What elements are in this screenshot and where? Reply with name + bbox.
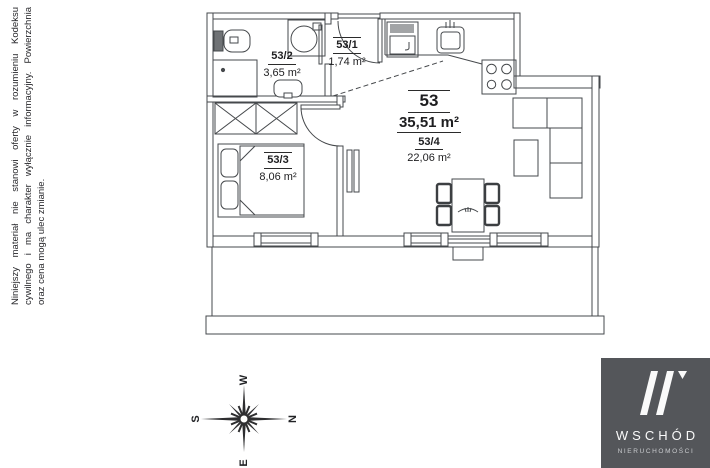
room-area: 1,74 m² bbox=[316, 56, 378, 69]
window-radiator-icon bbox=[254, 233, 318, 246]
kitchen-fixtures bbox=[385, 19, 516, 94]
disclaimer-line: cywilnego i ma charakter wyłącznie infor… bbox=[22, 7, 35, 305]
compass-south-label: S bbox=[190, 415, 202, 422]
unit-area: 35,51 m² bbox=[397, 114, 461, 133]
logo-w-icon bbox=[624, 369, 688, 415]
room-number: 53/1 bbox=[333, 37, 360, 54]
bedroom-door-swing bbox=[301, 107, 340, 146]
coffee-table-icon bbox=[514, 140, 538, 176]
compass-west-label: W bbox=[238, 374, 250, 385]
window-radiator-icon bbox=[404, 233, 448, 246]
stove-icon bbox=[482, 60, 516, 94]
wardrobe-icon bbox=[215, 103, 297, 134]
dining-set-icon bbox=[437, 179, 499, 232]
room-number: 53/4 bbox=[415, 136, 442, 151]
toilet-tank bbox=[214, 31, 223, 51]
logo-name: WSCHÓD bbox=[605, 428, 710, 443]
bedroom-door-leaf bbox=[301, 105, 340, 109]
agency-logo: WSCHÓD NIERUCHOMOŚCI bbox=[601, 358, 710, 468]
room-number: 53/3 bbox=[264, 152, 291, 169]
unit-53-label: 53 35,51 m² 53/4 22,06 m² bbox=[381, 90, 477, 165]
disclaimer-line: oraz cena mogą ulec zmianie. bbox=[35, 7, 48, 305]
disclaimer-line: Niniejszy materiał nie stanowi oferty w … bbox=[9, 7, 22, 305]
room-53-2-label: 53/2 3,65 m² bbox=[250, 50, 314, 79]
logo-subtitle: NIERUCHOMOŚCI bbox=[602, 448, 710, 455]
compass-north-label: N bbox=[287, 415, 299, 423]
entrance-door-leaf bbox=[378, 19, 382, 62]
disclaimer-text: Niniejszy materiał nie stanowi oferty w … bbox=[9, 7, 48, 305]
sofa-icon bbox=[513, 98, 582, 198]
room-area: 3,65 m² bbox=[250, 67, 314, 80]
floorplan-page: W N E S 53/2 3,65 m² 53/1 1,74 m² 53 35,… bbox=[0, 0, 710, 468]
unit-number: 53 bbox=[408, 90, 451, 113]
balcony-slab bbox=[206, 316, 604, 334]
compass-east-label: E bbox=[238, 459, 250, 466]
toilet-icon bbox=[224, 30, 250, 52]
room-area: 22,06 m² bbox=[381, 152, 477, 165]
room-53-3-label: 53/3 8,06 m² bbox=[246, 152, 310, 183]
balcony-step bbox=[453, 247, 483, 260]
room-number: 53/2 bbox=[268, 50, 295, 65]
room-area: 8,06 m² bbox=[246, 171, 310, 184]
room-53-1-label: 53/1 1,74 m² bbox=[316, 37, 378, 68]
tv-unit-icon bbox=[347, 150, 359, 192]
window-radiator-icon bbox=[490, 233, 548, 246]
compass-rose: W N E S bbox=[190, 374, 299, 466]
balcony bbox=[206, 247, 604, 334]
